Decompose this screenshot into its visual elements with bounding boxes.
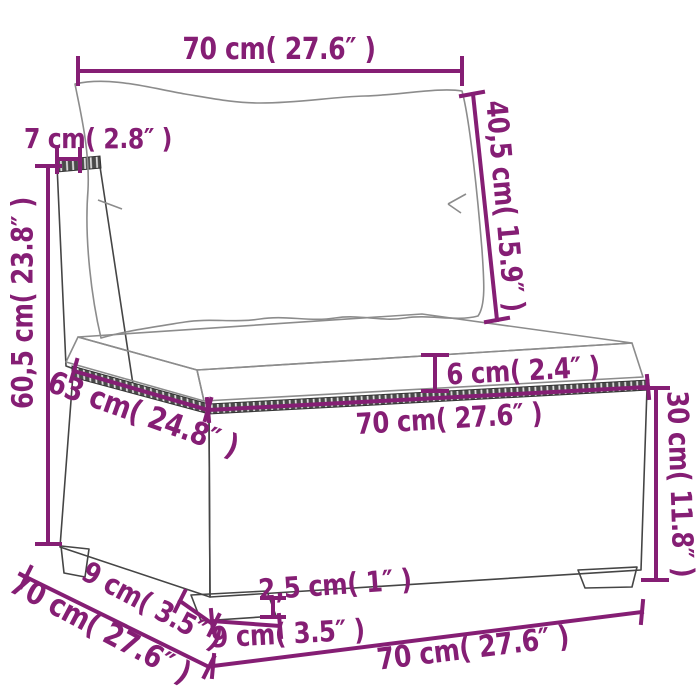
cushion-crease-right (448, 194, 466, 213)
dim-label-base-height: 30 cm( 11.8″ ) (662, 390, 697, 577)
cushion-crease-left (98, 200, 122, 209)
product-dimension-diagram: 70 cm( 27.6″ ) 40,5 cm( 15.9″ ) 7 cm( 2.… (0, 0, 700, 700)
dim-label-back-cushion-width: 70 cm( 27.6″ ) (182, 35, 375, 65)
dim-label-foot-width: 9 cm( 3.5″ ) (211, 616, 366, 653)
dim-label-overall-height: 60,5 cm( 23.8″ ) (9, 197, 38, 409)
dim-label-back-panel-thickness: 7 cm( 2.8″ ) (24, 125, 172, 153)
dim-label-seat-cushion-thickness: 6 cm( 2.4″ ) (446, 353, 601, 390)
back-panel (56, 156, 134, 391)
back-cushion (75, 81, 484, 338)
